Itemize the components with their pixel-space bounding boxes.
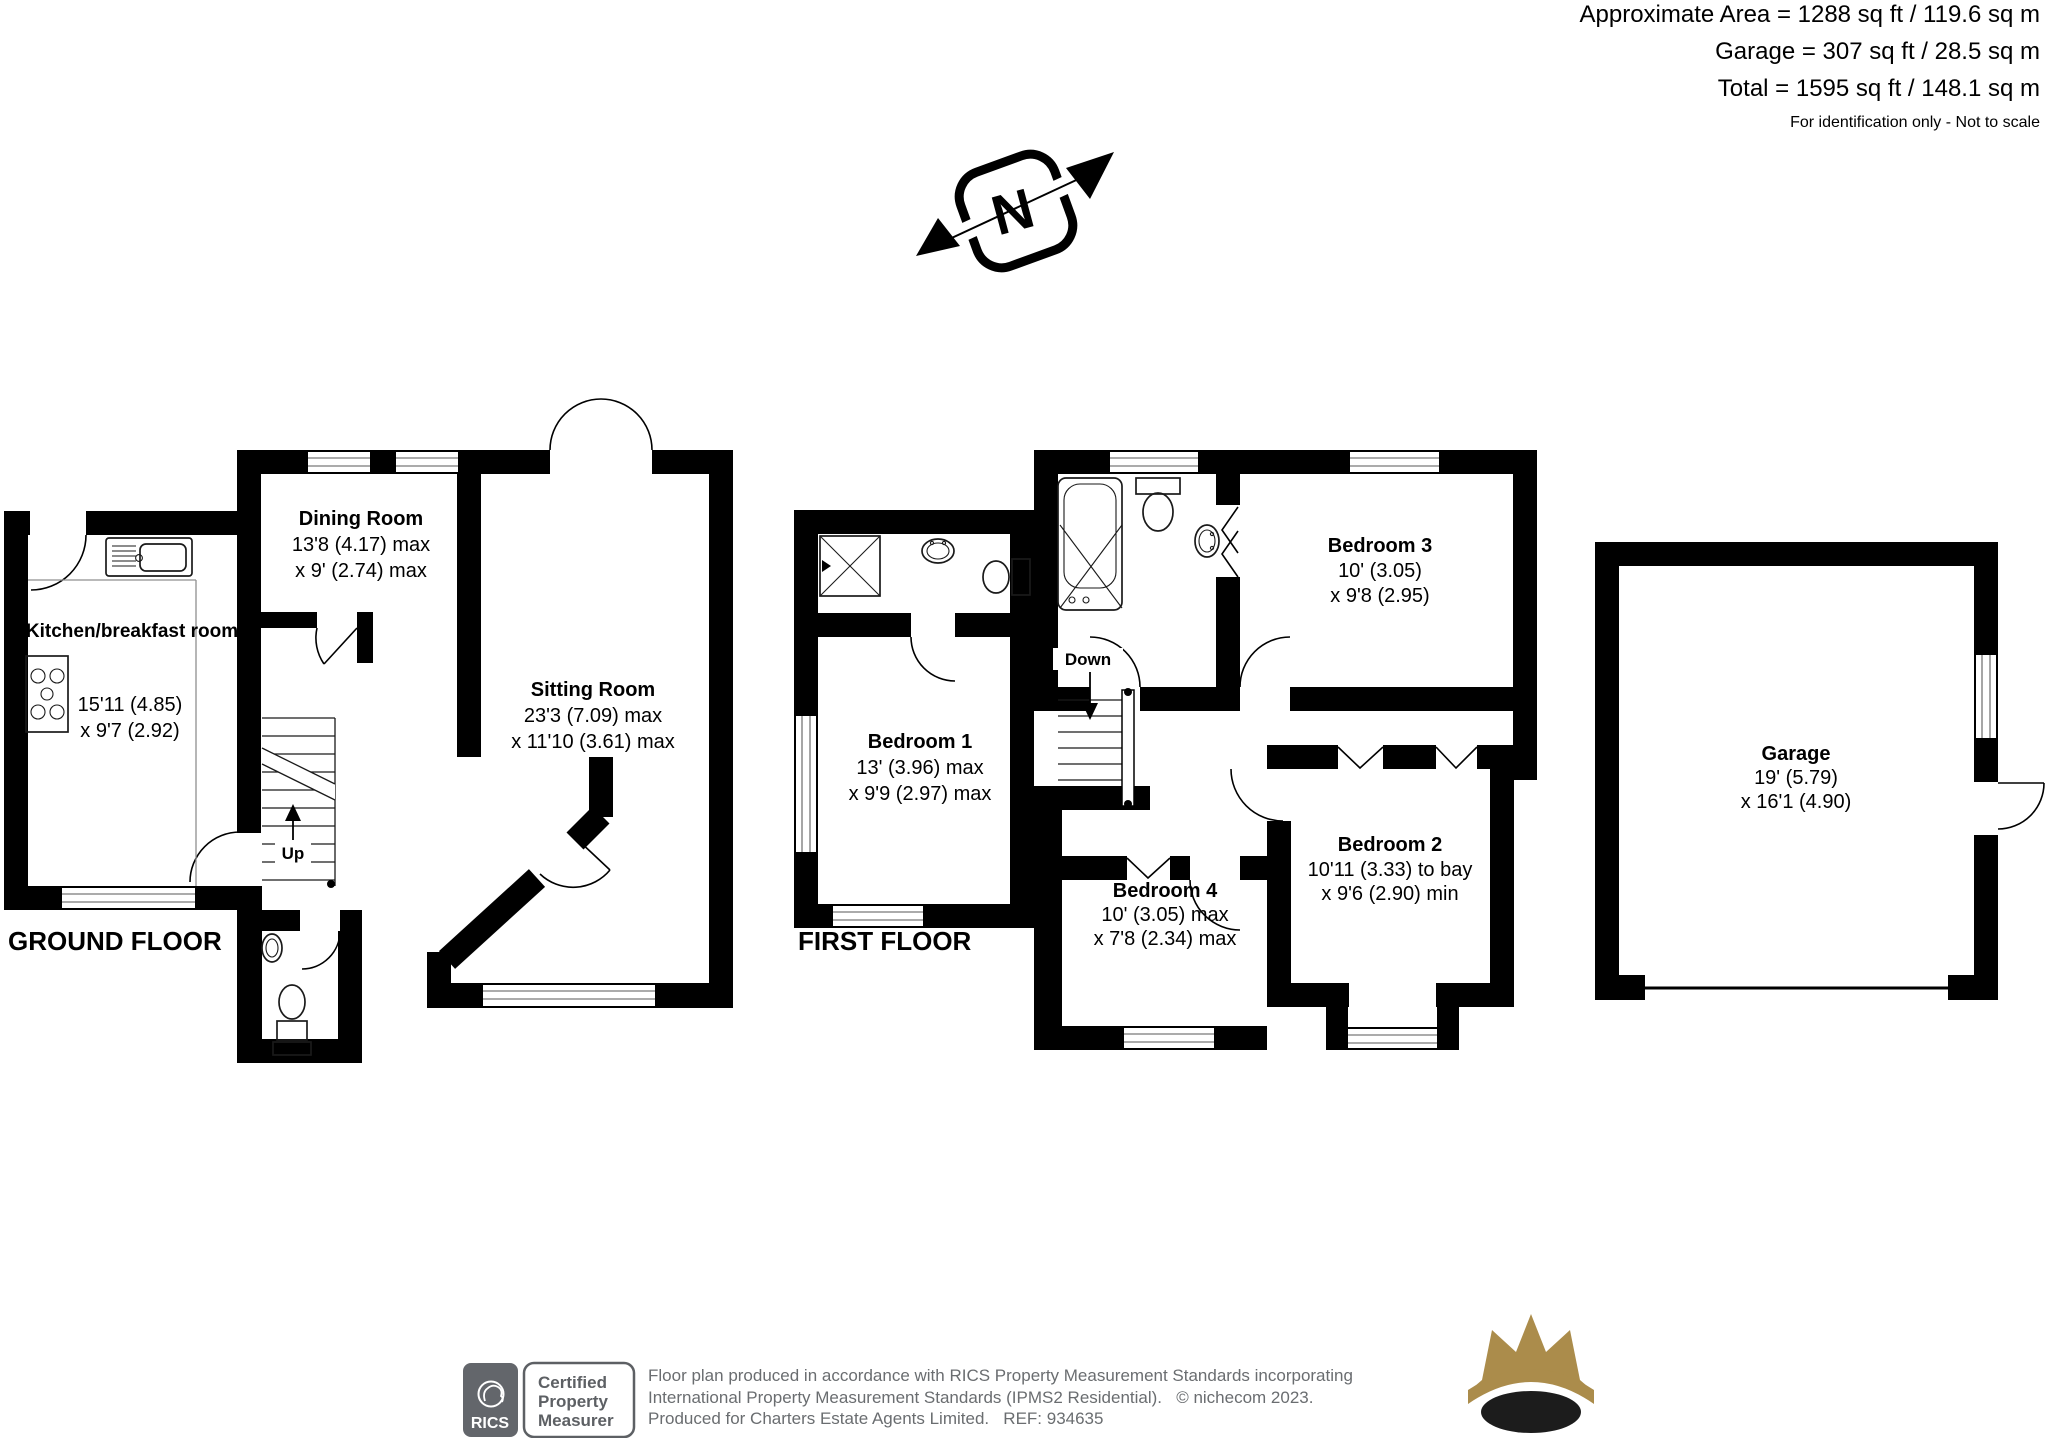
badge-line-2: Property xyxy=(538,1392,608,1411)
sitting-room-name: Sitting Room xyxy=(531,679,655,701)
bedroom1-name: Bedroom 1 xyxy=(868,731,972,753)
dining-room-dim1: 13'8 (4.17) max xyxy=(292,534,430,556)
bedroom4-dim1: 10' (3.05) max xyxy=(1101,904,1228,926)
bedroom2-name: Bedroom 2 xyxy=(1338,834,1442,856)
sitting-room-dim2: x 11'10 (3.61) max xyxy=(511,731,675,753)
garage-name: Garage xyxy=(1762,743,1831,765)
stairs-down: Down xyxy=(1053,648,1134,808)
sitting-room-dim1: 23'3 (7.09) max xyxy=(524,705,662,727)
approximate-area-text: Approximate Area = 1288 sq ft / 119.6 sq… xyxy=(1580,1,2041,28)
crown-logo-icon xyxy=(1468,1314,1594,1433)
north-compass-icon: N xyxy=(916,147,1114,275)
first-floor-plan: Down xyxy=(794,450,1537,1050)
bedroom1-dim1: 13' (3.96) max xyxy=(856,757,983,779)
shower-room-basin xyxy=(922,539,954,563)
certified-property-measurer-badge: Certified Property Measurer xyxy=(524,1363,634,1437)
kitchen-hob xyxy=(26,656,68,732)
total-area-text: Total = 1595 sq ft / 148.1 sq m xyxy=(1718,75,2040,102)
ground-floor-label: GROUND FLOOR xyxy=(8,926,222,956)
badge-line-3: Measurer xyxy=(538,1411,614,1430)
dining-room-name: Dining Room xyxy=(299,508,423,530)
bathroom-bath xyxy=(1058,478,1122,610)
disclaimer-line-2: International Property Measurement Stand… xyxy=(648,1388,1313,1407)
kitchen-name: Kitchen/breakfast room xyxy=(26,621,238,642)
bedroom3-dim2: x 9'8 (2.95) xyxy=(1330,585,1429,607)
first-floor-label: FIRST FLOOR xyxy=(798,926,972,956)
kitchen-dim2: x 9'7 (2.92) xyxy=(80,720,179,742)
garage-dim2: x 16'1 (4.90) xyxy=(1741,791,1852,813)
bedroom4-name: Bedroom 4 xyxy=(1113,880,1218,902)
bathroom-basin xyxy=(1195,525,1219,557)
floorplan-page: Approximate Area = 1288 sq ft / 119.6 sq… xyxy=(0,0,2048,1438)
garage-area-text: Garage = 307 sq ft / 28.5 sq m xyxy=(1715,38,2040,65)
bedroom1-dim2: x 9'9 (2.97) max xyxy=(849,783,992,805)
disclaimer-line-1: Floor plan produced in accordance with R… xyxy=(648,1366,1353,1385)
rics-logo-text: RICS xyxy=(471,1415,510,1432)
rics-logo: RICS xyxy=(463,1363,518,1437)
stairs-up: Up xyxy=(262,718,335,888)
ground-floor-plan: Up xyxy=(4,399,733,1063)
bedroom4-dim2: x 7'8 (2.34) max xyxy=(1094,928,1237,950)
garage-window xyxy=(1975,655,1997,738)
bedroom2-dim2: x 9'6 (2.90) min xyxy=(1321,883,1458,905)
kitchen-sink xyxy=(106,538,192,576)
garage-plan: Garage 19' (5.79) x 16'1 (4.90) xyxy=(1595,542,2044,1000)
compass-north-letter: N xyxy=(985,176,1040,247)
bedroom3-dim1: 10' (3.05) xyxy=(1338,560,1422,582)
down-label: Down xyxy=(1065,650,1111,669)
up-label: Up xyxy=(282,844,305,863)
wc-basin xyxy=(262,934,282,962)
shower-cubicle xyxy=(820,536,880,596)
garage-dim1: 19' (5.79) xyxy=(1754,767,1838,789)
badge-line-1: Certified xyxy=(538,1373,607,1392)
bedroom3-name: Bedroom 3 xyxy=(1328,535,1432,557)
garage-door xyxy=(1998,783,2044,829)
kitchen-dim1: 15'11 (4.85) xyxy=(78,694,183,716)
disclaimer-line-3: Produced for Charters Estate Agents Limi… xyxy=(648,1409,1103,1428)
not-to-scale-note: For identification only - Not to scale xyxy=(1790,114,2040,131)
bedroom2-dim1: 10'11 (3.33) to bay xyxy=(1308,859,1473,881)
bathroom-toilet xyxy=(1136,478,1180,531)
dining-room-dim2: x 9' (2.74) max xyxy=(295,560,427,582)
